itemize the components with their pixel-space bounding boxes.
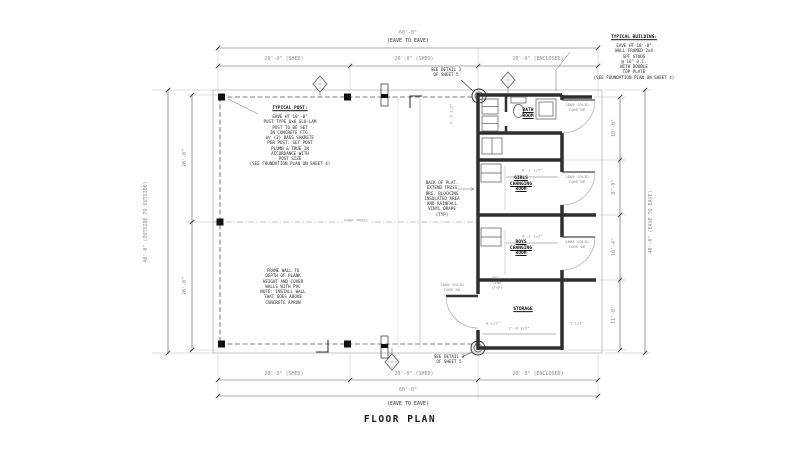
- gridline-jog-hooks: [316, 96, 422, 352]
- wall-line-note: WALL LINE (TYP): [491, 276, 503, 291]
- typical-post-note-body: EAVE HT 10'-0" POST TYPE 6x6 GLU-LAM POS…: [250, 114, 331, 167]
- dim-top-overall: 60'-0": [399, 30, 417, 36]
- typical-post-note-title: TYPICAL POST:: [272, 106, 307, 112]
- dim-right-overall: 40'-0" (EAVE TO EAVE): [648, 190, 654, 253]
- extension-lines: [152, 48, 651, 400]
- dim-right-seg-4: 11'-0": [611, 306, 617, 324]
- frame-wall-note: FRAME WALL TO DEPTH OF PLANK HEIGHT AND …: [260, 268, 305, 305]
- dim-storage-left: 8 1/2": [486, 322, 500, 327]
- dim-storage-right: 5 1/2": [570, 322, 584, 327]
- dim-top-enclosed: 20'-0" (ENCLOSED): [512, 56, 563, 62]
- sheet-title: FLOOR PLAN: [364, 414, 436, 426]
- floor-plan-sheet: 60'-0" (EAVE TO EAVE) 20'-0" (SHED) 20'-…: [0, 0, 800, 450]
- room-label-bath: BATH ROOM: [522, 108, 533, 119]
- room-label-boys: BOYS CHANGING ROOM: [510, 240, 532, 257]
- room-label-girls: GIRLS CHANGING ROOM: [510, 176, 532, 193]
- dim-right-seg-3: 10'-4": [611, 238, 617, 256]
- door-tag-bath: 2868 SOLID CORE DR: [565, 103, 588, 113]
- typical-building-note-title: TYPICAL BUILDING:: [611, 35, 657, 41]
- dim-storage-width: 7'-0 1/2": [508, 327, 529, 332]
- dim-boys-width: 9'-1 1/2": [521, 235, 542, 240]
- dim-top-overall-note: (EAVE TO EAVE): [387, 38, 429, 44]
- see-detail-callout-bottom: SEE DETAIL 3 OF SHEET 5: [434, 354, 464, 365]
- dim-left-overall: 40'-0" (OUTSIDE TO OUTSIDE): [143, 181, 149, 262]
- slab-edge-lines: [398, 95, 420, 348]
- building-walls: [478, 93, 596, 350]
- dim-bath-width: 4'-0 1/2": [450, 103, 455, 124]
- dim-top-shed-bay-1: 20'-0" (SHED): [264, 56, 303, 62]
- detail-circle-bottom: [462, 341, 485, 357]
- door-tag-storage: 2868 SOLID CORE DR: [440, 283, 463, 293]
- section-cut-markers: [381, 84, 388, 358]
- dim-bottom-shed-bay-1: 20'-0" (SHED): [264, 371, 303, 377]
- door-tag-girls: 2868 SOLID CORE DR: [565, 175, 588, 185]
- plan-linework: [0, 0, 800, 450]
- dim-right-seg-2: 8'-9": [611, 179, 617, 194]
- door-tag-boys: 2868 SOLID CORE DR: [565, 240, 588, 250]
- typical-building-note-body: EAVE HT 10'-0" WALL FRAMED 2x4 SPF STUDS…: [594, 43, 675, 80]
- room-label-storage: STORAGE: [513, 307, 532, 313]
- dim-girls-width: 9'-1 1/2": [521, 169, 542, 174]
- roof-truss-label: ROOF TRUSS: [342, 219, 369, 224]
- dim-left-bay-1: 20'-0": [182, 149, 188, 167]
- dim-right-seg-1: 10'-0": [611, 119, 617, 137]
- dim-left-bay-2: 20'-0": [182, 277, 188, 295]
- see-detail-callout-top: SEE DETAIL 3 OF SHEET 5: [431, 67, 461, 78]
- dim-bottom-enclosed: 20'-0" (ENCLOSED): [512, 371, 563, 377]
- dim-bottom-shed-bay-2: 20'-0" (SHED): [394, 371, 433, 377]
- platform-note: BACK OF PLAT. EXTEND TRUSS BRG. BLOCKING…: [420, 180, 464, 217]
- dim-bottom-overall: 60'-0": [399, 387, 417, 393]
- dim-bottom-overall-note: (EAVE TO EAVE): [387, 401, 429, 407]
- dim-top-shed-bay-2: 20'-0" (SHED): [394, 56, 433, 62]
